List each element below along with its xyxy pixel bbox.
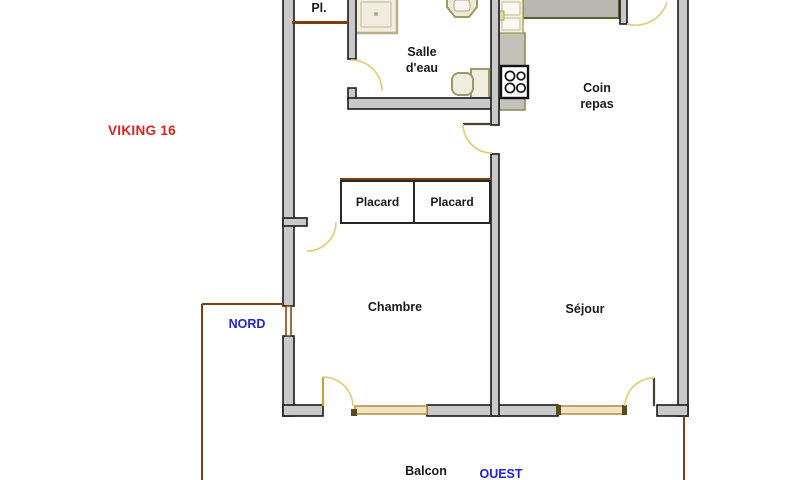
windows: [286, 306, 627, 416]
room-label-closet: Pl.: [302, 0, 336, 16]
room-label-bedroom: Chambre: [355, 299, 435, 315]
worktop-top: [523, 0, 619, 18]
orientation-label-north: NORD: [221, 316, 273, 332]
floor-plan: Pl. Salle d'eau Coin repas VIKING 16 Pla…: [0, 0, 800, 480]
room-label-dining: Coin repas: [557, 80, 637, 112]
bathroom-kitchen-wall: [491, 0, 499, 125]
washbasin: [447, 0, 477, 17]
orientation-label-west: OUEST: [470, 466, 532, 480]
window-cap: [556, 405, 561, 415]
bedroom-balcony-window: [355, 406, 427, 414]
left-wall-lower: [283, 336, 294, 416]
bedroom-balcony-door-arc: [323, 377, 353, 406]
window-cap: [622, 405, 627, 415]
room-label-living: Séjour: [545, 301, 625, 317]
bathroom-bottom-wall: [348, 98, 499, 109]
plan-title: VIKING 16: [82, 123, 202, 139]
living-balcony-door-arc: [625, 378, 654, 406]
closet-bottom-line: [292, 21, 348, 24]
kitchen-sink: [497, 0, 523, 33]
room-label-bathroom: Salle d'eau: [382, 44, 462, 76]
bottom-wall-right: [657, 405, 688, 416]
bottom-wall-left: [283, 405, 323, 416]
closet-bathroom-wall: [348, 0, 356, 59]
entry-door-arc: [627, 2, 667, 25]
entry-door-leaf: [620, 0, 627, 24]
living-door-arc: [463, 124, 492, 153]
bedroom-door-stub: [283, 218, 307, 226]
room-label-placard-left: Placard: [341, 194, 414, 210]
bedroom-living-divider: [491, 154, 499, 416]
living-balcony-window: [560, 406, 623, 414]
window-cap: [351, 409, 357, 416]
bedroom-door-arc: [307, 222, 336, 251]
stove: [501, 66, 528, 98]
bathroom-door-arc: [351, 60, 382, 91]
shower-tray: [355, 0, 397, 33]
balcony-outline: [202, 304, 684, 480]
room-label-balcony: Balcon: [395, 463, 457, 479]
left-wall-upper: [283, 0, 294, 306]
left-wall-window: [286, 306, 291, 336]
room-label-placard-right: Placard: [414, 194, 490, 210]
right-wall: [678, 0, 688, 416]
